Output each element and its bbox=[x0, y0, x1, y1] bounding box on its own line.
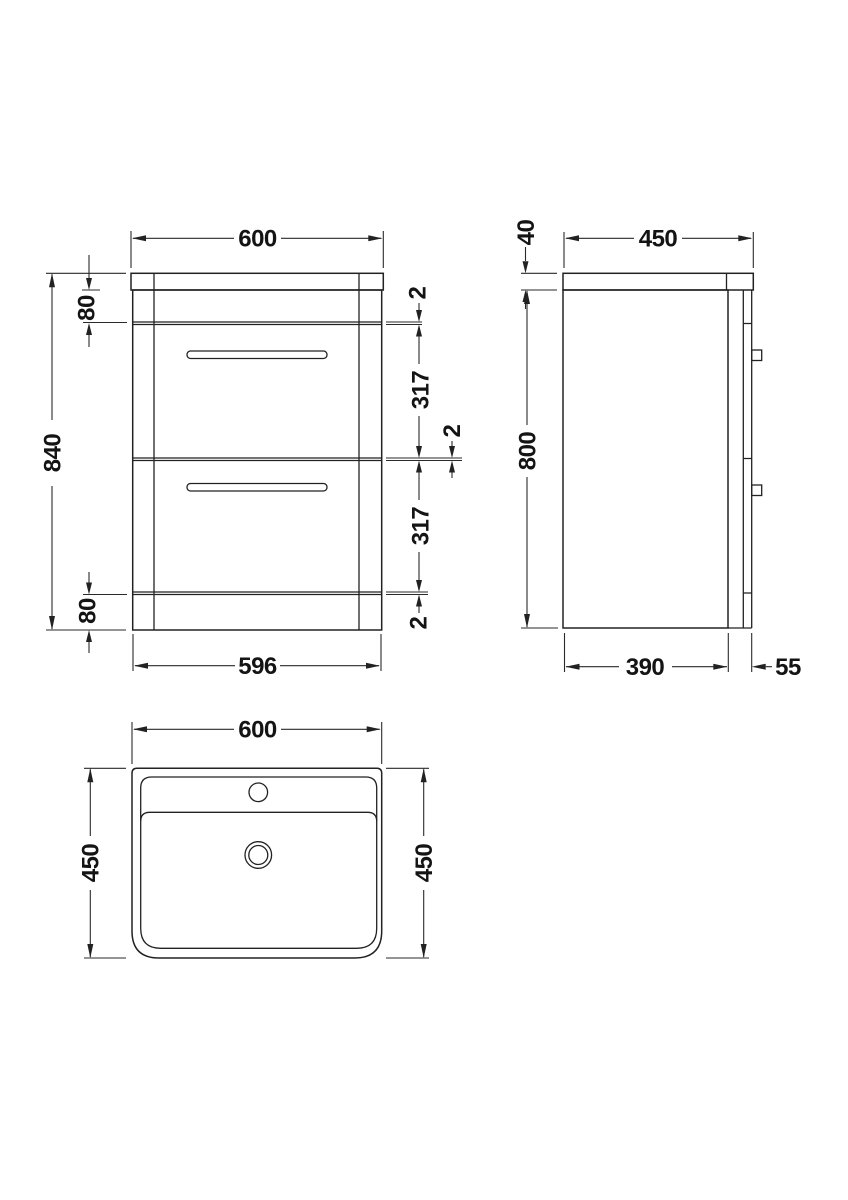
dim-front-bottom-section-label: 80 bbox=[74, 598, 101, 624]
front-corner-lines bbox=[154, 273, 359, 630]
dim-front-overall-height-label: 840 bbox=[39, 434, 66, 473]
dim-side-body-depth-label: 390 bbox=[626, 654, 665, 681]
dim-basin-depth-right-label: 450 bbox=[411, 844, 438, 883]
dim-front-gap-top: 2 bbox=[386, 286, 431, 336]
dim-front-width-top: 600 bbox=[131, 226, 383, 268]
dim-front-drawer1: 317 bbox=[407, 337, 434, 459]
dim-front-width-bottom: 596 bbox=[133, 634, 381, 680]
basin-ledge-line bbox=[141, 812, 377, 821]
dim-side-worktop-label: 40 bbox=[513, 220, 540, 246]
tap-hole bbox=[249, 783, 268, 802]
dim-front-bottom-section: 80 bbox=[74, 572, 127, 653]
dim-front-gap-top-label: 2 bbox=[404, 286, 431, 299]
dim-side-drawer-front: 55 bbox=[752, 633, 801, 681]
basin-outer-outline bbox=[132, 768, 382, 958]
dim-basin-depth-left: 450 bbox=[77, 768, 126, 958]
vanity-unit-technical-drawing: 600 840 80 80 596 2 bbox=[0, 0, 848, 1200]
drawer2-handle bbox=[187, 484, 327, 492]
dim-front-drawer2-label: 317 bbox=[407, 507, 434, 546]
dim-side-depth-label: 450 bbox=[639, 226, 678, 253]
dim-front-drawer1-label: 317 bbox=[407, 371, 434, 410]
dim-side-height-label: 800 bbox=[514, 432, 541, 471]
dim-basin-depth-left-label: 450 bbox=[77, 844, 104, 883]
side-view: 40 450 800 390 55 bbox=[513, 220, 801, 682]
dim-basin-width-label: 600 bbox=[238, 717, 277, 744]
dim-side-body-depth: 390 bbox=[565, 633, 729, 681]
side-handle2-tab bbox=[752, 485, 762, 496]
basin-view: 600 450 450 bbox=[77, 717, 438, 958]
dim-front-top-section-label: 80 bbox=[73, 295, 100, 321]
dim-front-gap-middle-label: 2 bbox=[439, 424, 466, 437]
dim-basin-depth-right: 450 bbox=[386, 768, 438, 958]
dim-side-drawer-front-label: 55 bbox=[775, 654, 801, 681]
basin-rim-outline bbox=[141, 777, 377, 948]
dim-front-width-top-label: 600 bbox=[238, 226, 277, 253]
front-view: 600 840 80 80 596 2 bbox=[39, 226, 466, 680]
side-drawer-gap-ticks bbox=[743, 324, 751, 594]
dim-front-gap-bottom: 2 bbox=[386, 592, 432, 629]
drawing-canvas: 600 840 80 80 596 2 bbox=[0, 0, 848, 1200]
dim-front-gap-bottom-label: 2 bbox=[405, 616, 432, 629]
dim-front-width-bottom-label: 596 bbox=[238, 653, 277, 680]
front-worktop-outline bbox=[131, 273, 383, 290]
side-cabinet-outline bbox=[563, 290, 728, 628]
dim-side-depth: 450 bbox=[564, 226, 753, 268]
dim-basin-width: 600 bbox=[132, 717, 382, 764]
side-handle1-tab bbox=[752, 350, 762, 361]
dim-side-height: 800 bbox=[514, 290, 558, 628]
dim-front-gap-middle: 2 bbox=[386, 424, 466, 478]
dim-front-top-section: 80 bbox=[73, 255, 127, 347]
dim-side-worktop: 40 bbox=[513, 220, 557, 309]
dim-front-overall-height: 840 bbox=[39, 273, 126, 630]
front-drawer-gap-lines bbox=[133, 322, 382, 595]
side-worktop-outline bbox=[563, 273, 753, 290]
drawer1-handle bbox=[187, 351, 327, 359]
waste-hole-inner bbox=[249, 846, 268, 865]
dim-front-drawer2: 317 bbox=[407, 461, 434, 593]
